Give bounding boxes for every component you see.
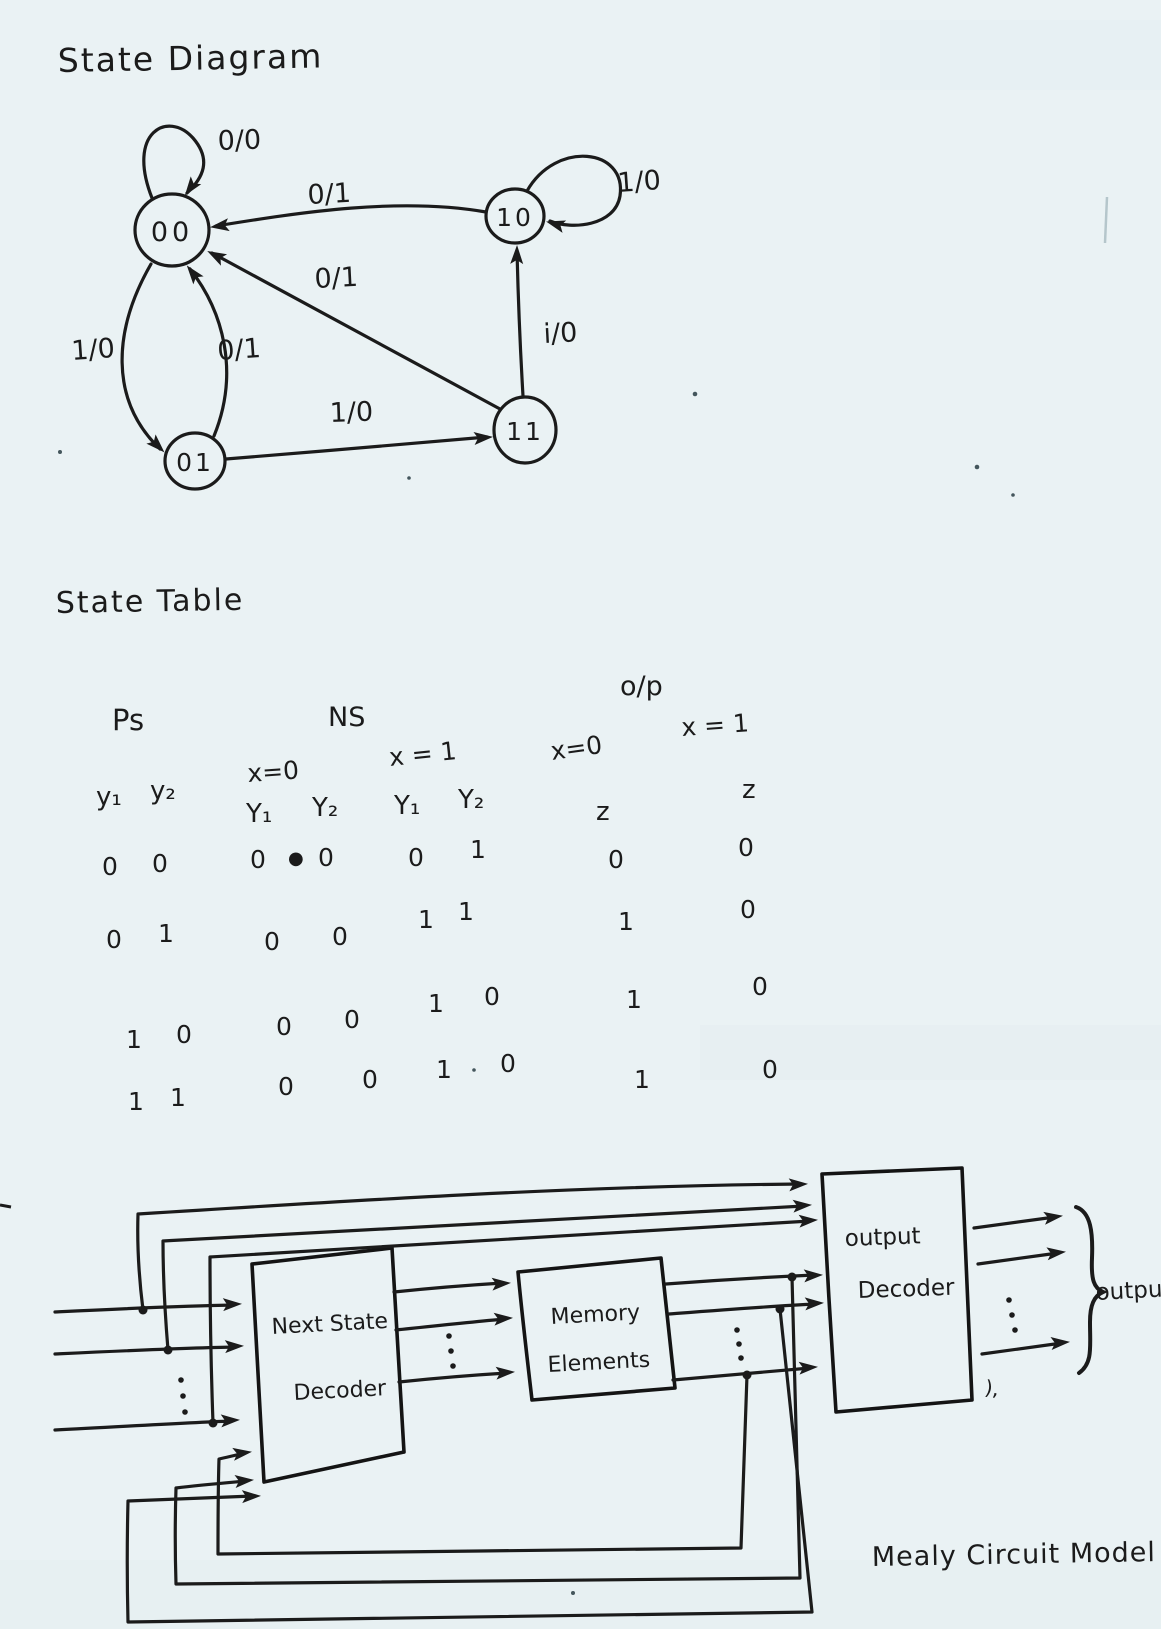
edge-label-01-00: 0/1 (216, 333, 262, 367)
stray-dot (58, 450, 62, 454)
edge-label-11-10: i/0 (543, 317, 578, 350)
edge-label-10-00: 0/1 (307, 178, 352, 211)
cell-r2-ps-y1: 0 (106, 925, 122, 954)
header-op-x1: x = 1 (680, 708, 749, 742)
ellipsis-dots (446, 1333, 452, 1339)
next-state-decoder-label-2: Decoder (293, 1376, 388, 1406)
edge-label-self-00: 0/0 (217, 124, 262, 156)
header-ns: NS (328, 702, 365, 733)
header-Y1-x1: Y₁ (393, 791, 420, 821)
cell-r1-ns0-Y1: 0 (250, 845, 266, 874)
cell-r2-z0: 1 (618, 907, 634, 936)
cell-r1-ns1-Y2: 1 (470, 835, 486, 864)
diagram-caption: Mealy Circuit Model (872, 1537, 1157, 1573)
ellipsis-dots (734, 1327, 740, 1333)
cell-r1-ps-y1: 0 (102, 852, 118, 881)
cell-r3-ns1-Y2: 0 (484, 982, 500, 1011)
cell-r1-z0: 0 (608, 845, 624, 874)
cell-r4-z0: 1 (634, 1065, 650, 1094)
cell-r2-ns1-Y1: 1 (418, 905, 434, 934)
cell-r3-ns0-Y2: 0 (344, 1005, 360, 1034)
cell-r4-ps-y2: 1 (170, 1083, 186, 1112)
outputs-label: outputs (1095, 1275, 1161, 1306)
stray-dot (975, 465, 980, 470)
cell-r2-z1: 0 (740, 895, 756, 924)
ellipsis-dots (1012, 1327, 1018, 1333)
cell-r4-ns0-Y2: 0 (362, 1065, 378, 1094)
header-ns-x0: x=0 (246, 755, 300, 788)
cell-r2-ns0-Y2: 0 (332, 922, 348, 951)
ellipsis-dots (1006, 1297, 1012, 1303)
ellipsis-dots (182, 1409, 188, 1415)
header-Y1-x0: Y₁ (245, 799, 272, 829)
cell-r1-ns1-Y1: 0 (408, 843, 424, 872)
memory-elements-label-1: Memory (550, 1300, 641, 1330)
edge-label-self-10: 1/0 (616, 165, 662, 199)
stray-dot (407, 476, 411, 480)
edge-label-11-00: 0/1 (314, 262, 359, 295)
ellipsis-dots (1009, 1312, 1015, 1318)
ellipsis-dots (738, 1355, 744, 1361)
ellipsis-dots (448, 1348, 454, 1354)
notebook-page: State Diagram 00 10 01 11 0/0 1/0 0/1 0/… (0, 0, 1161, 1629)
cell-r3-ps-y2: 0 (176, 1020, 192, 1049)
ellipsis-dots (178, 1377, 184, 1383)
cell-r1-ns0-Y2: 0 (318, 843, 334, 872)
output-decoder-label-2: Decoder (857, 1275, 955, 1304)
state-11-label: 11 (506, 417, 544, 446)
state-diagram-title: State Diagram (57, 36, 323, 80)
header-ps: Ps (112, 703, 144, 737)
hand-drawn-sketch: State Diagram 00 10 01 11 0/0 1/0 0/1 0/… (0, 0, 1161, 1629)
cell-r2-ns0-Y1: 0 (264, 927, 280, 956)
edge-label-00-01: 1/0 (70, 333, 116, 367)
cell-r4-ns1-Y2: 0 (500, 1049, 516, 1078)
page-edge-mark (0, 1205, 11, 1207)
state-10-label: 10 (496, 203, 534, 232)
state-00-label: 00 (151, 217, 193, 248)
cell-r1-z1: 0 (738, 833, 754, 862)
header-y1: y₁ (96, 782, 122, 812)
header-Y2-x0: Y₂ (311, 793, 338, 823)
stray-dot (693, 392, 698, 397)
ellipsis-dots (736, 1341, 742, 1347)
ellipsis-dots (450, 1363, 456, 1369)
stray-dot (1011, 493, 1015, 497)
state-table-title: State Table (56, 583, 245, 621)
cell-r4-ps-y1: 1 (128, 1087, 144, 1116)
cell-r3-ns0-Y1: 0 (276, 1012, 292, 1041)
cell-r4-ns0-Y1: 0 (278, 1072, 294, 1101)
edge-label-01-11: 1/0 (329, 396, 374, 428)
paper-shade (880, 20, 1161, 90)
output-decoder-label-1: output (844, 1223, 921, 1252)
cell-r2-ns1-Y2: 1 (458, 897, 474, 926)
cell-r2-ps-y2: 1 (158, 919, 174, 948)
cell-r1-ps-y2: 0 (152, 849, 168, 878)
ellipsis-dots (180, 1393, 186, 1399)
cell-r4-ns1-Y1: 1 (436, 1055, 452, 1084)
cell-r3-z1: 0 (752, 972, 768, 1001)
header-op: o/p (620, 671, 663, 702)
header-y2: y₂ (150, 776, 176, 806)
header-Y2-x1: Y₂ (457, 785, 484, 815)
stray-dot (571, 1591, 575, 1595)
header-z-x0: z (596, 797, 610, 827)
cell-r3-ns1-Y1: 1 (428, 989, 444, 1018)
header-z-x1: z (742, 775, 756, 805)
cell-r4-z1: 0 (762, 1055, 778, 1084)
stray-dot (472, 1068, 476, 1072)
state-01-label: 01 (176, 448, 214, 477)
cell-r3-z0: 1 (626, 985, 642, 1014)
cell-r3-ps-y1: 1 (126, 1025, 142, 1054)
ink-blob: ● (288, 848, 304, 869)
